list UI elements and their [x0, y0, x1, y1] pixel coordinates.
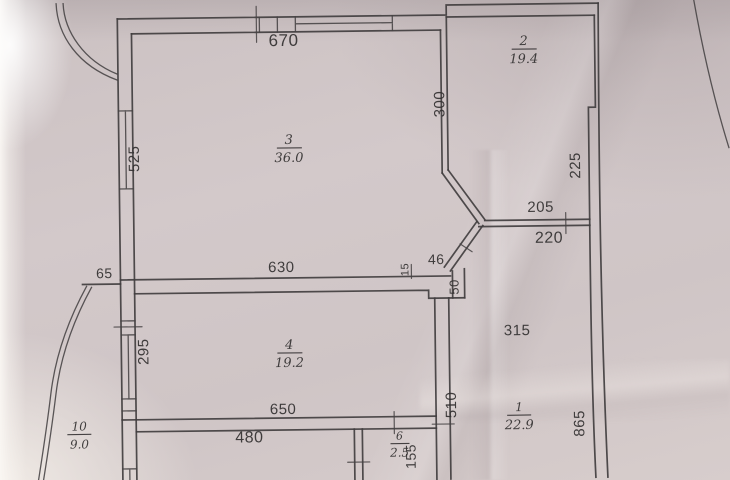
room-4-label: 4 19.2 — [275, 338, 304, 371]
tick-marks — [110, 3, 569, 466]
dim-670: 670 — [269, 31, 299, 50]
dim-510: 510 — [443, 392, 460, 419]
room-3-number: 3 — [285, 133, 293, 148]
room-6-number: 6 — [396, 430, 403, 443]
dim-15: 15 — [399, 263, 411, 276]
room-1-label: 1 22.9 — [503, 400, 533, 433]
wall-room4-bottom — [122, 416, 436, 432]
dim-630: 630 — [268, 259, 295, 276]
room-1-number: 1 — [515, 400, 523, 414]
wall-room6-left — [354, 429, 363, 480]
room-2-label: 2 19.4 — [509, 34, 538, 67]
dim-480: 480 — [235, 429, 263, 446]
wall-right — [587, 3, 608, 477]
dim-650: 650 — [270, 401, 297, 418]
dim-300: 300 — [431, 91, 448, 118]
dim-295: 295 — [135, 338, 152, 365]
room-3-area: 36.0 — [274, 151, 303, 166]
dim-225: 225 — [567, 152, 584, 179]
balcony-arc-top-left — [56, 3, 117, 81]
walls — [79, 3, 608, 480]
room-3-label: 3 36.0 — [274, 133, 303, 166]
dimension-labels: 670 630 205 220 46 65 315 650 480 — [93, 28, 565, 449]
wall-room4-right — [435, 298, 451, 479]
dim-205: 205 — [527, 199, 554, 216]
window-left-bottom — [123, 469, 137, 480]
dim-525: 525 — [126, 145, 143, 172]
room-6-area: 2.5 — [389, 445, 409, 459]
floor-plan-photo: 670 630 205 220 46 65 315 650 480 525 30… — [0, 0, 730, 480]
windows — [117, 16, 398, 480]
lot-line-right — [693, 0, 729, 148]
wall-top — [117, 3, 598, 34]
floor-plan-drawing: 670 630 205 220 46 65 315 650 480 525 30… — [0, 0, 730, 480]
room-10-number: 10 — [72, 419, 88, 433]
room-2-area: 19.4 — [509, 52, 538, 67]
dim-46: 46 — [428, 251, 445, 267]
room-10-area: 9.0 — [70, 437, 90, 451]
dim-50: 50 — [446, 279, 461, 295]
room-2-number: 2 — [518, 34, 527, 49]
tick — [460, 244, 472, 252]
window-left-295 — [121, 321, 136, 411]
wall-room3-room4 — [120, 276, 464, 302]
wall-chamfer-upper — [442, 170, 485, 225]
dim-220: 220 — [535, 230, 563, 247]
dim-315: 315 — [504, 322, 531, 339]
dim-65: 65 — [96, 265, 113, 281]
room-6-label: 6 2.5 — [389, 429, 410, 459]
room-4-area: 19.2 — [275, 356, 304, 371]
room-1-area: 22.9 — [504, 418, 534, 433]
wall-room2-bottom — [479, 219, 590, 226]
room-4-number: 4 — [284, 338, 293, 353]
room-10-label: 10 9.0 — [67, 419, 91, 451]
window-top-wall — [259, 16, 392, 33]
dim-865: 865 — [571, 410, 588, 437]
